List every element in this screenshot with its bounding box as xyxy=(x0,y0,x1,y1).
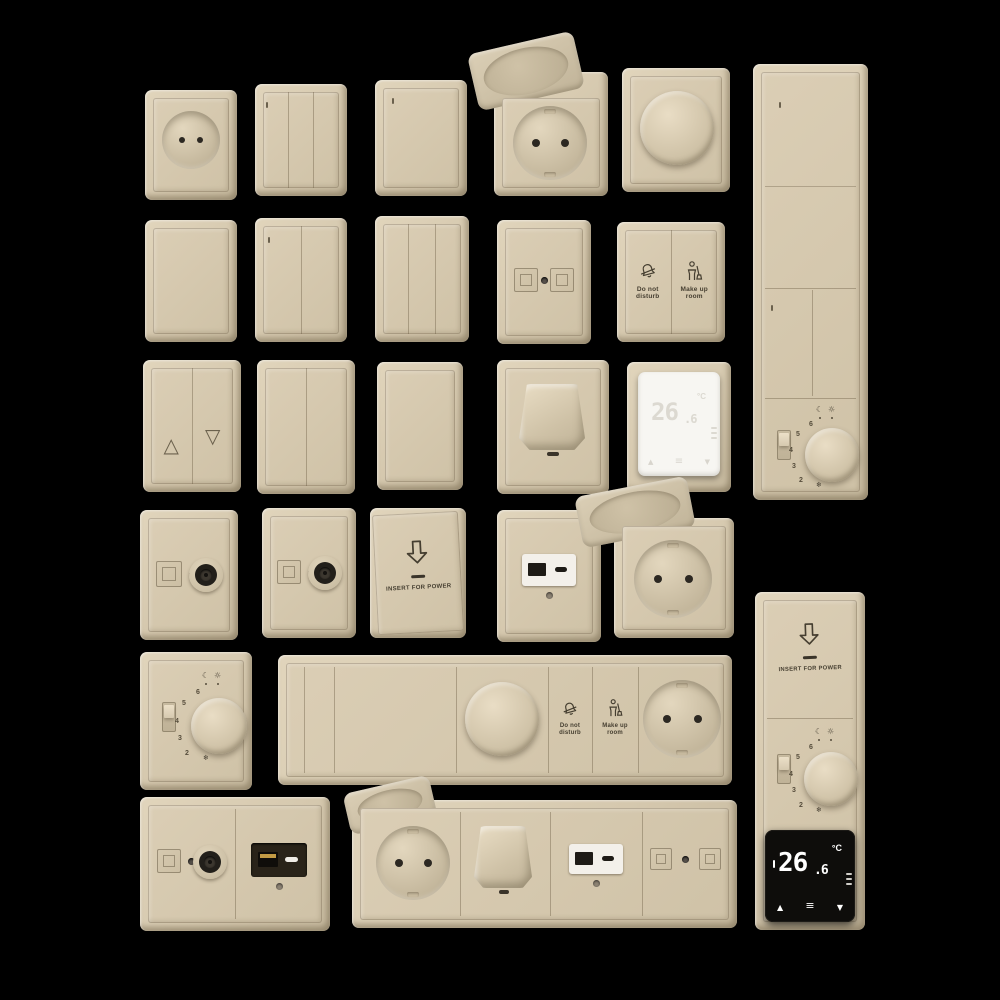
dial-number: 4 xyxy=(789,771,793,778)
socket-pin-hole xyxy=(424,859,432,867)
rocker-button[interactable] xyxy=(263,92,288,188)
thermostat-digital-black: 26 .6 °C ▲ ≡ ▼ xyxy=(765,830,855,922)
usb-module-white xyxy=(550,808,642,920)
socket-flip-lid xyxy=(494,72,608,196)
down-arrow-button[interactable]: ▼ xyxy=(705,459,710,466)
data-port[interactable] xyxy=(156,561,182,587)
outlet-face xyxy=(270,516,348,630)
rocker-button[interactable] xyxy=(385,370,455,482)
cable-outlet xyxy=(497,360,609,494)
frost-icon: ❄ xyxy=(203,755,209,762)
socket-unearthed[interactable] xyxy=(145,90,237,200)
dimmer xyxy=(622,68,730,192)
socket-recess[interactable] xyxy=(634,540,712,618)
socket-face xyxy=(502,98,600,188)
data-outlet-2port xyxy=(497,220,591,344)
bell-crossed-icon xyxy=(560,699,580,719)
screw xyxy=(593,880,600,887)
thermostat-display: 26 .6 °C ▲ ≡ ▼ xyxy=(638,372,720,476)
panel-face xyxy=(360,808,729,920)
dial-number: 5 xyxy=(182,700,186,707)
frost-icon: ❄ xyxy=(816,482,822,489)
blind-up-button[interactable]: △ xyxy=(151,368,192,484)
insert-for-power-label: INSERT FOR POWER xyxy=(376,583,462,594)
indicator-mark xyxy=(268,237,270,243)
rocker-button[interactable] xyxy=(313,92,339,188)
switch-3gang xyxy=(255,84,347,196)
switch-2gang-module xyxy=(765,290,856,396)
earth-clip xyxy=(544,109,556,114)
rocker-button[interactable] xyxy=(153,228,229,334)
day-mode-icon: ☼ xyxy=(828,406,835,414)
keycard-holder: INSERT FOR POWER xyxy=(370,508,466,638)
socket-recess[interactable] xyxy=(643,680,721,758)
up-arrow-button[interactable]: ▲ xyxy=(648,459,653,466)
switch-face xyxy=(153,228,229,334)
switch-face xyxy=(263,226,339,334)
rocker-button[interactable] xyxy=(765,290,812,396)
socket-pin-hole xyxy=(179,137,185,143)
housekeeping-icon xyxy=(684,260,704,282)
rocker-button-narrow[interactable] xyxy=(304,667,334,773)
menu-button[interactable]: ≡ xyxy=(675,457,683,467)
dial-number: 2 xyxy=(799,802,803,809)
side-vents xyxy=(711,424,717,442)
temperature-unit: °C xyxy=(832,843,842,853)
blind-down-icon: ▽ xyxy=(205,426,220,446)
coax-connector[interactable] xyxy=(308,556,342,590)
usb-c-port[interactable] xyxy=(602,856,614,861)
thermostat-toggle[interactable] xyxy=(777,430,791,460)
socket-flip-lid-b xyxy=(614,518,734,638)
switch-2gang xyxy=(255,218,347,342)
usb-a-port[interactable] xyxy=(258,852,278,867)
tv-outlet-a xyxy=(140,510,238,640)
outlet-face xyxy=(148,518,230,632)
switch-face xyxy=(265,368,347,486)
do-not-disturb-button[interactable]: Do not disturb xyxy=(625,230,671,334)
indicator-mark xyxy=(392,98,394,104)
panel-face: INSERT FOR POWER ☾ ☼ 6 5 4 3 2 ❄ 26 .6 °… xyxy=(763,600,857,922)
socket-recess[interactable] xyxy=(376,826,450,900)
housekeeping-icon xyxy=(606,698,624,718)
socket-pin-hole xyxy=(654,575,662,583)
panel-horizontal-a: Do not disturb Make up room xyxy=(278,655,732,785)
socket-pin-hole xyxy=(197,137,203,143)
dimmer-module xyxy=(456,663,548,777)
do-not-disturb-label: Do not disturb xyxy=(625,286,671,300)
thermostat-dial-standalone: ☾ ☼ 6 5 4 3 2 ❄ xyxy=(140,652,252,790)
rocker-button[interactable] xyxy=(306,368,348,486)
indicator-mark xyxy=(266,102,268,108)
switch-3gang-b xyxy=(375,216,469,342)
dial-number: 3 xyxy=(792,463,796,470)
dial-number: 6 xyxy=(196,689,200,696)
earth-clip xyxy=(667,610,679,615)
data-module-2port xyxy=(642,808,729,920)
socket-pin-hole xyxy=(561,139,569,147)
make-up-room-button[interactable]: Make up room xyxy=(592,663,638,777)
socket-recess[interactable] xyxy=(162,111,220,169)
switch-face: △ ▽ xyxy=(151,368,233,484)
temperature-unit: °C xyxy=(697,392,706,401)
coax-connector[interactable] xyxy=(189,558,223,592)
switch-face: Do not disturb Make up room xyxy=(625,230,717,334)
dial-number: 3 xyxy=(178,735,182,742)
dial-number: 5 xyxy=(796,431,800,438)
switch-1gang-blank xyxy=(145,220,237,342)
thermostat-dial-knob[interactable] xyxy=(805,428,859,482)
tv-module xyxy=(148,805,235,923)
dimmer-face xyxy=(630,76,722,184)
screw xyxy=(546,592,553,599)
dial-number: 2 xyxy=(185,750,189,757)
dimmer-knob[interactable] xyxy=(640,91,714,165)
switch-hotel-dnd-mur: Do not disturb Make up room xyxy=(617,222,725,342)
switch-1gang xyxy=(375,80,467,196)
earth-clip xyxy=(667,543,679,548)
rocker-button[interactable] xyxy=(265,368,306,486)
rocker-button[interactable] xyxy=(301,226,340,334)
outlet-face xyxy=(148,805,322,923)
outlet-face xyxy=(505,228,583,336)
combo-tv-usb-outlet xyxy=(140,797,330,931)
earth-clip xyxy=(407,892,419,897)
earth-clip xyxy=(407,829,419,834)
rocker-button[interactable] xyxy=(408,224,434,334)
temperature-decimal: .6 xyxy=(684,412,696,426)
dial-number: 4 xyxy=(789,447,793,454)
blind-up-icon: △ xyxy=(164,435,179,455)
cable-outlet-module xyxy=(460,808,550,920)
thermostat-dial-module: ☾ ☼ 6 5 4 3 2 ❄ xyxy=(761,400,860,492)
usb-module-black xyxy=(235,805,322,923)
up-arrow-button[interactable]: ▲ xyxy=(777,904,783,912)
usb-a-port[interactable] xyxy=(528,563,546,576)
data-port[interactable] xyxy=(650,848,672,870)
earth-clip xyxy=(544,172,556,177)
dial-number: 3 xyxy=(792,787,796,794)
temperature-value: 26 xyxy=(651,398,678,426)
menu-button[interactable]: ≡ xyxy=(805,900,814,911)
switch-face xyxy=(263,92,339,188)
socket-face xyxy=(153,98,229,192)
day-mode-icon: ☼ xyxy=(214,672,221,680)
insert-card-arrow-icon xyxy=(401,536,433,568)
thermostat-toggle[interactable] xyxy=(777,754,791,784)
socket-pin-hole xyxy=(532,139,540,147)
earth-clip xyxy=(676,750,688,755)
usb-module xyxy=(251,843,307,877)
socket-pin-hole xyxy=(685,575,693,583)
data-port[interactable] xyxy=(699,848,721,870)
rocker-button[interactable] xyxy=(383,88,459,188)
switch-face xyxy=(385,370,455,482)
coax-connector[interactable] xyxy=(193,845,227,879)
thermostat-face: ☾ ☼ 6 5 4 3 2 ❄ xyxy=(148,660,244,782)
rocker-button[interactable] xyxy=(812,290,856,396)
outlet-face xyxy=(505,518,593,634)
usb-a-port[interactable] xyxy=(575,852,593,865)
dial-number: 6 xyxy=(809,421,813,428)
dial-number: 5 xyxy=(796,754,800,761)
heat-indicator-icon xyxy=(773,860,775,868)
large-rocker-module[interactable] xyxy=(765,78,856,286)
temperature-decimal: .6 xyxy=(814,863,828,878)
panel-horizontal-b xyxy=(352,800,737,928)
do-not-disturb-button[interactable]: Do not disturb xyxy=(548,663,592,777)
keycard-module[interactable]: INSERT FOR POWER xyxy=(763,602,857,717)
do-not-disturb-label: Do not disturb xyxy=(548,723,592,737)
cable-outlet-hood[interactable] xyxy=(519,384,585,450)
thermostat-dial-knob[interactable] xyxy=(191,698,247,754)
temperature-value: 26 xyxy=(778,848,807,878)
side-vents xyxy=(846,870,852,888)
data-port[interactable] xyxy=(157,849,181,873)
insert-for-power-label: INSERT FOR POWER xyxy=(765,664,855,674)
socket-module xyxy=(638,663,724,777)
socket-pin-hole xyxy=(663,715,671,723)
panel-vertical-b: INSERT FOR POWER ☾ ☼ 6 5 4 3 2 ❄ 26 .6 °… xyxy=(755,592,865,930)
cable-exit-slot xyxy=(499,890,509,894)
cable-outlet-hood[interactable] xyxy=(474,826,532,888)
switch-1gang-c xyxy=(377,362,463,490)
panel-face: Do not disturb Make up room xyxy=(286,663,724,777)
data-port[interactable] xyxy=(550,268,574,292)
make-up-room-label: Make up room xyxy=(592,723,638,737)
day-mode-icon: ☼ xyxy=(827,728,834,736)
socket-pin-hole xyxy=(395,859,403,867)
down-arrow-button[interactable]: ▼ xyxy=(837,904,843,912)
screw xyxy=(276,883,283,890)
night-mode-icon: ☾ xyxy=(816,406,823,414)
dial-number: 4 xyxy=(175,718,179,725)
dimmer-knob[interactable] xyxy=(465,682,539,756)
keycard-slot-cover[interactable]: INSERT FOR POWER xyxy=(372,511,464,635)
rocker-button[interactable] xyxy=(263,226,301,334)
data-port[interactable] xyxy=(277,560,301,584)
dial-number: 2 xyxy=(799,477,803,484)
earth-clip xyxy=(676,683,688,688)
thermostat-digital-white: 26 .6 °C ▲ ≡ ▼ xyxy=(627,362,731,492)
bell-crossed-icon xyxy=(637,260,659,282)
socket-module xyxy=(366,808,460,920)
usb-c-port[interactable] xyxy=(555,567,567,572)
dial-number: 6 xyxy=(809,744,813,751)
switch-face xyxy=(383,88,459,188)
card-slot[interactable] xyxy=(803,656,817,659)
indicator-mark xyxy=(771,305,773,311)
thermostat-dial-knob[interactable] xyxy=(804,752,858,806)
thermostat-dial-module: ☾ ☼ 6 5 4 3 2 ❄ xyxy=(763,720,857,824)
card-slot[interactable] xyxy=(411,575,425,579)
panel-vertical-multigang: ☾ ☼ 6 5 4 3 2 ❄ xyxy=(753,64,868,500)
status-led xyxy=(541,277,548,284)
blind-switch: △ ▽ xyxy=(143,360,241,492)
rocker-button[interactable] xyxy=(288,92,314,188)
usb-module xyxy=(522,554,576,586)
rocker-button-wide[interactable] xyxy=(334,667,456,773)
make-up-room-button[interactable]: Make up room xyxy=(671,230,718,334)
blind-down-button[interactable]: ▽ xyxy=(192,368,234,484)
status-led xyxy=(682,856,689,863)
socket-face xyxy=(622,526,726,630)
make-up-room-label: Make up room xyxy=(672,286,718,300)
switch-2gang-c xyxy=(257,360,355,494)
night-mode-icon: ☾ xyxy=(202,672,209,680)
tv-outlet-b xyxy=(262,508,356,638)
rocker-button[interactable] xyxy=(435,224,461,334)
usb-c-port[interactable] xyxy=(285,857,298,862)
rocker-button[interactable] xyxy=(383,224,408,334)
usb-module xyxy=(569,844,623,874)
frost-icon: ❄ xyxy=(816,807,822,814)
thermostat-toggle[interactable] xyxy=(162,702,176,732)
cable-exit-slot xyxy=(547,452,559,456)
insert-card-arrow-icon xyxy=(795,620,824,649)
panel-face: ☾ ☼ 6 5 4 3 2 ❄ xyxy=(761,72,860,492)
night-mode-icon: ☾ xyxy=(815,728,822,736)
data-port[interactable] xyxy=(514,268,538,292)
switch-face xyxy=(383,224,461,334)
indicator-mark xyxy=(779,102,781,108)
socket-recess[interactable] xyxy=(513,106,587,180)
socket-pin-hole xyxy=(694,715,702,723)
